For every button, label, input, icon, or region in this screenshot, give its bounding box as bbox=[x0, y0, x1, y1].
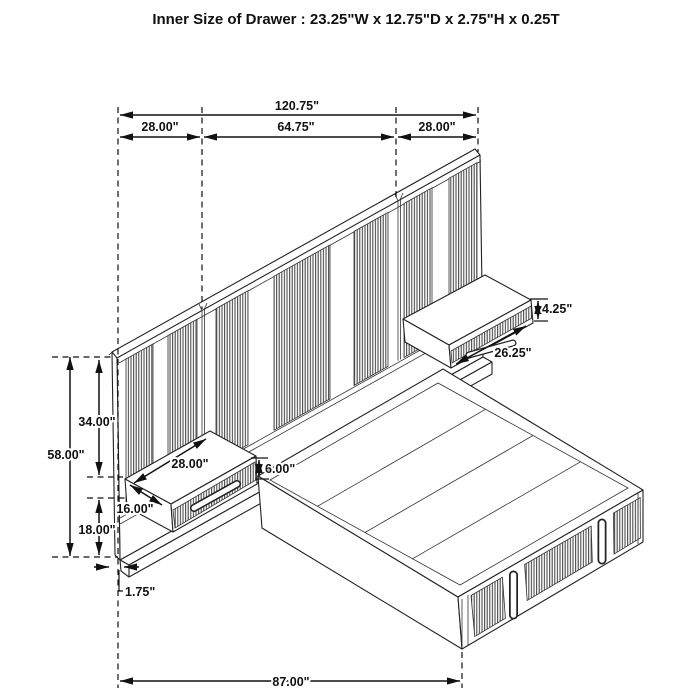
diagram-canvas: Inner Size of Drawer : 23.25"W x 12.75"D… bbox=[0, 0, 700, 700]
dim-label-total-width: 120.75" bbox=[275, 99, 319, 113]
dim-label-right-ns-width: 26.25" bbox=[494, 346, 531, 360]
dim-label-upper-height: 34.00" bbox=[78, 415, 115, 429]
dim-label-left-section: 28.00" bbox=[141, 120, 178, 134]
dim-label-lower-height: 18.00" bbox=[78, 523, 115, 537]
leader-line-thickness bbox=[119, 570, 123, 591]
dim-label-center-section: 64.75" bbox=[277, 120, 314, 134]
dim-label-headboard-height: 58.00" bbox=[47, 448, 84, 462]
dim-label-bed-length: 87.00" bbox=[272, 675, 309, 689]
dim-label-left-ns-depth: 16.00" bbox=[116, 502, 153, 516]
diagram-title: Inner Size of Drawer : 23.25"W x 12.75"D… bbox=[152, 11, 559, 28]
headboard-rib-panel bbox=[354, 212, 388, 385]
bedroom-set-dimension-diagram: Inner Size of Drawer : 23.25"W x 12.75"D… bbox=[0, 0, 700, 700]
dim-label-right-ns-height: 4.25" bbox=[542, 302, 572, 316]
dim-label-thickness: 1.75" bbox=[125, 585, 155, 599]
dim-label-right-section: 28.00" bbox=[418, 120, 455, 134]
dim-label-left-ns-height: 6.00" bbox=[265, 462, 295, 476]
dim-label-left-ns-width: 28.00" bbox=[171, 457, 208, 471]
headboard-rib-panel bbox=[274, 245, 330, 430]
